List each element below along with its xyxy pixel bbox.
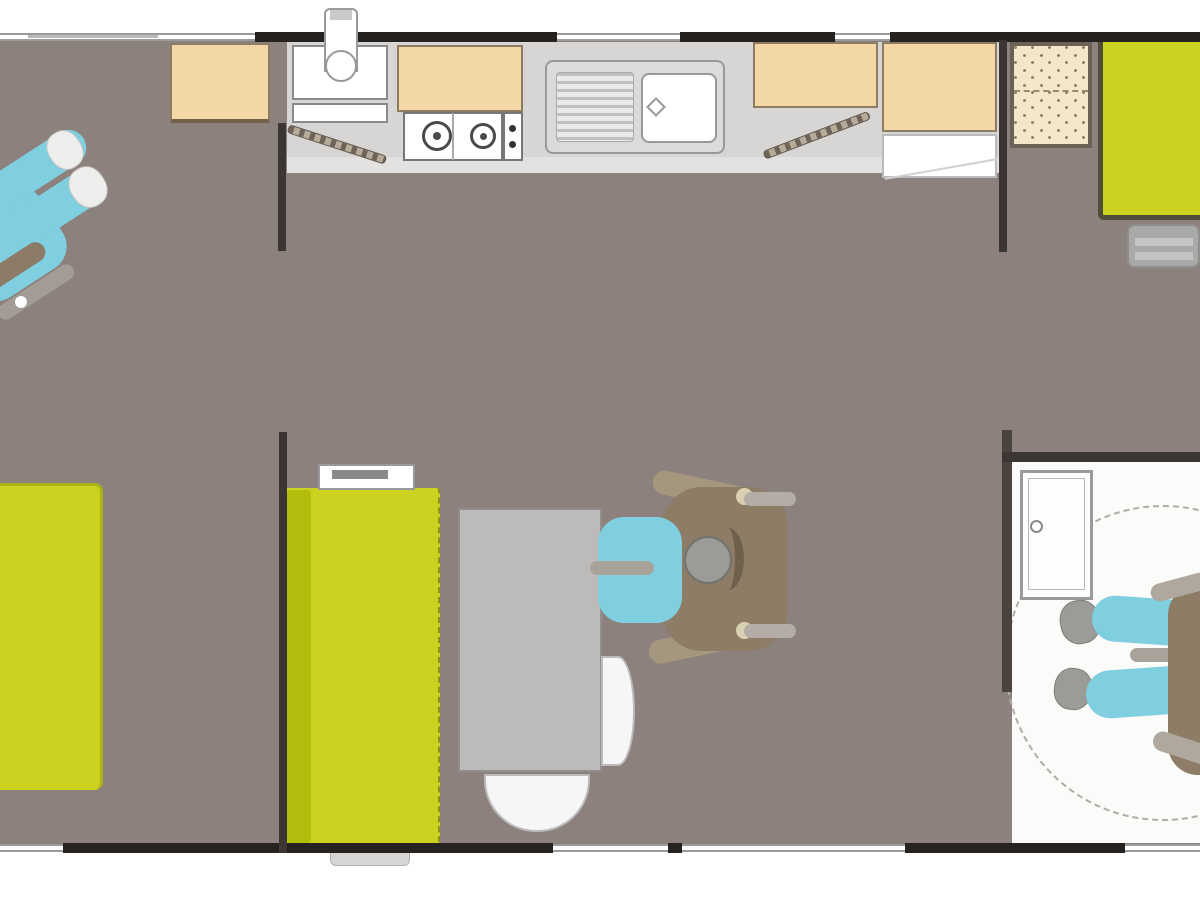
sofa-wall-shelf-bar [332,470,388,479]
water-heater-cap [330,10,352,20]
bottom-wall-1 [63,843,553,853]
interior-wall-left-bottom [279,432,287,853]
stove-knob-top [509,125,516,132]
stove-knob-bottom [509,141,516,148]
wardrobe-hanging-rail [1014,90,1088,93]
bottom-wall-2 [905,843,1125,853]
bed-steps [1127,224,1200,268]
interior-wall-bath-left [1002,430,1012,692]
top-wall-2 [680,32,835,42]
bed-steps-bar-top [1135,238,1193,246]
tall-cabinet-fridge [882,42,997,132]
bed-left-bedroom [0,483,103,790]
wheelchair-dining-handle-bottom [744,624,796,638]
stove-burner-right-center [480,133,487,140]
bottom-wall-post [668,843,682,853]
interior-wall-right-top [999,40,1007,252]
wheelchair-user-left-footrest [14,295,28,309]
bed-right-bedroom [1098,42,1200,220]
bottom-sliding-door [682,844,905,852]
wheelchair-dining-handle-top [744,492,796,506]
top-window-left-mark [28,35,158,38]
stove-burner-left-center [433,132,441,140]
top-window-right [835,33,890,41]
sofa-back-stripe [287,490,311,843]
kitchen-sink-drainer [556,72,634,142]
floor-plan [0,0,1200,900]
bed-steps-bar-bottom [1135,252,1193,260]
shower-tray-inner [1028,478,1085,590]
cabinet-right-of-sink [753,42,878,108]
wardrobe-dotted [1010,42,1092,148]
bottom-window-bath [1125,844,1200,852]
interior-wall-left-top [278,123,286,251]
stove-divider [452,113,454,160]
water-heater-drum [325,50,357,82]
wall-cabinet-over-stove [397,45,523,112]
top-window-sink [557,33,680,41]
wardrobe-left-bedroom [170,43,270,123]
entry-step-outside [330,851,410,866]
wheelchair-user-dining-headrest [712,528,744,590]
bottom-window-dining [553,844,668,852]
fridge-open-shelf [882,134,997,178]
stove-knob-panel [503,112,523,161]
dining-chair-right [601,656,635,766]
dining-table [458,508,602,772]
top-wall-1 [255,32,557,42]
top-wall-3 [890,32,1200,42]
shower-drain [1030,520,1043,533]
bottom-window-left [0,844,63,852]
entry-shelf [292,103,388,123]
wheelchair-user-dining-armrest [590,561,654,575]
bathroom-top-wall [1002,452,1200,462]
